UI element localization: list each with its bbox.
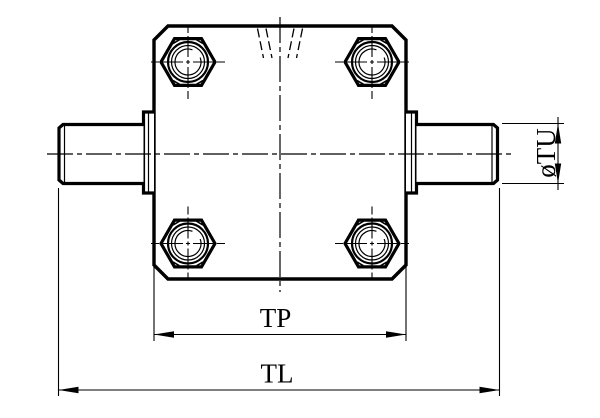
arrow-left-icon bbox=[154, 331, 174, 337]
dimension-label-tp: TP bbox=[260, 303, 292, 333]
boss-right bbox=[406, 112, 417, 193]
arrow-left-icon bbox=[59, 387, 79, 393]
arrow-right-icon bbox=[480, 387, 500, 393]
dimension-label-tl: TL bbox=[261, 359, 294, 389]
drawing-canvas: TP TL øTU bbox=[0, 0, 600, 418]
arrow-right-icon bbox=[386, 331, 406, 337]
dimension-label-tu: øTU bbox=[531, 128, 561, 178]
boss-left bbox=[144, 112, 155, 193]
dimension-tu: øTU bbox=[502, 117, 564, 190]
technical-drawing: TP TL øTU bbox=[0, 0, 600, 418]
